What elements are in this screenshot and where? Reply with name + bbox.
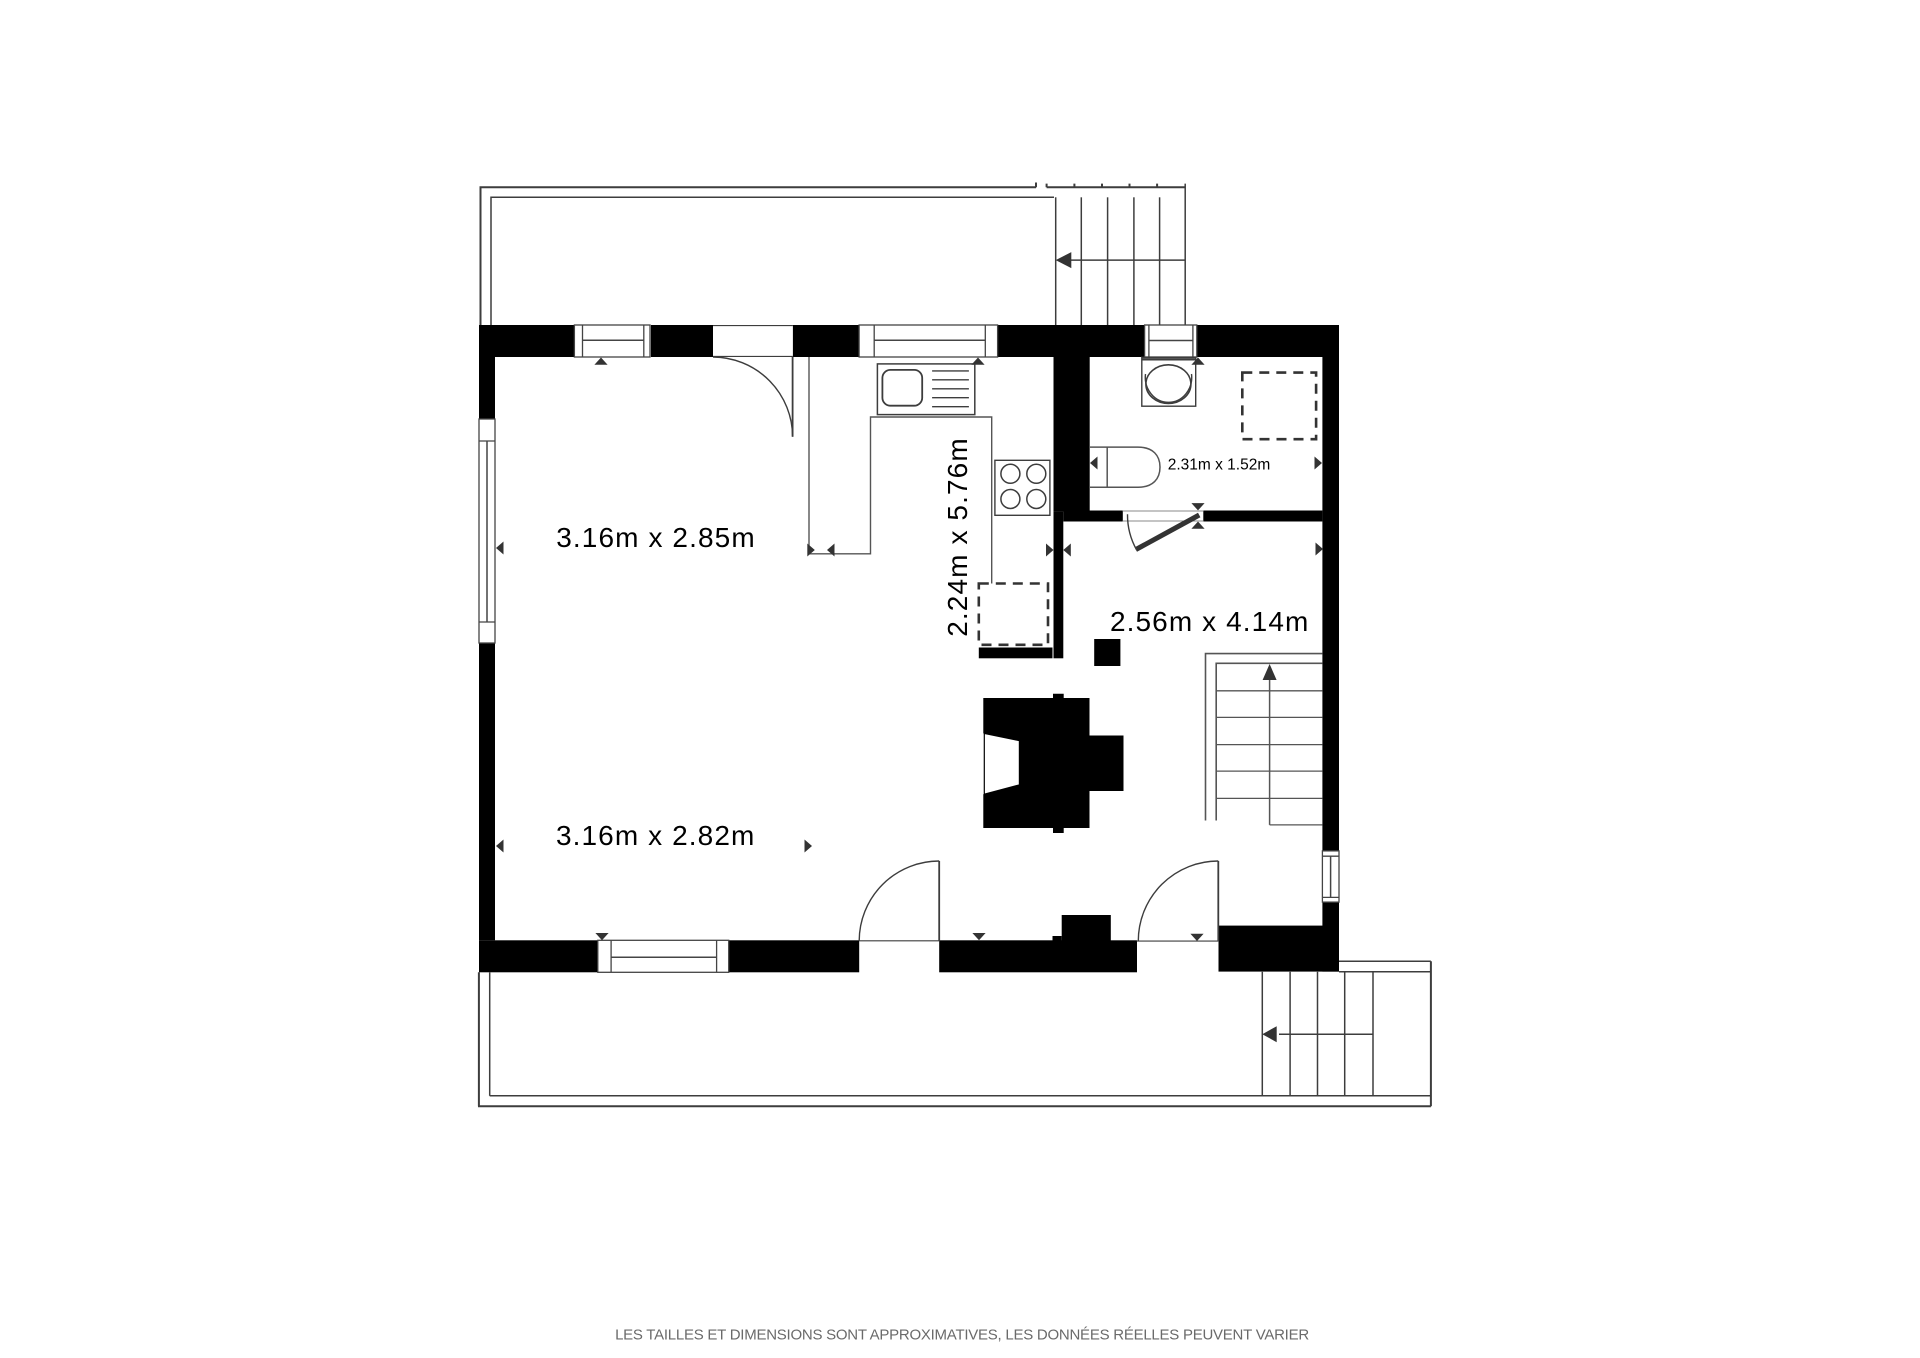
svg-text:3.16m x 2.85m: 3.16m x 2.85m xyxy=(556,522,756,553)
svg-text:2.56m x 4.14m: 2.56m x 4.14m xyxy=(1110,606,1310,637)
svg-text:3.16m x 2.82m: 3.16m x 2.82m xyxy=(556,820,756,851)
svg-text:2.31m x 1.52m: 2.31m x 1.52m xyxy=(1168,456,1271,473)
svg-text:2.24m x 5.76m: 2.24m x 5.76m xyxy=(942,437,973,637)
svg-text:LES TAILLES ET DIMENSIONS SONT: LES TAILLES ET DIMENSIONS SONT APPROXIMA… xyxy=(615,1327,1309,1344)
